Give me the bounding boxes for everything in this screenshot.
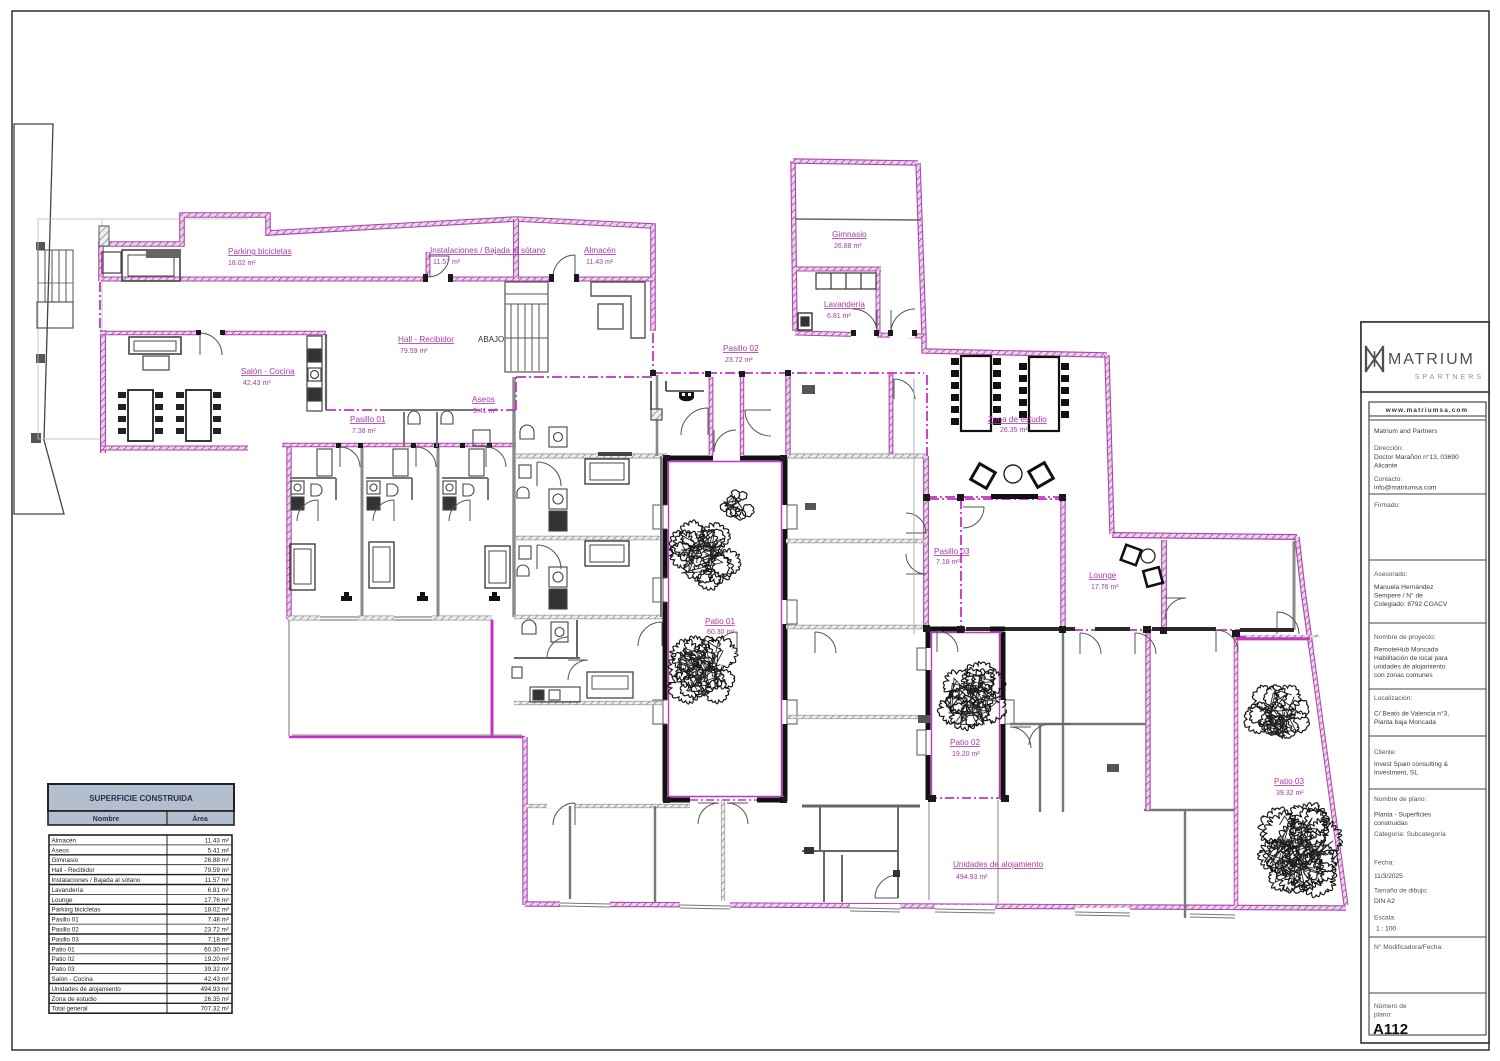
svg-text:18.02 m²: 18.02 m² [228, 260, 256, 267]
svg-text:17.76 m²: 17.76 m² [1091, 584, 1119, 591]
svg-text:DIN A2: DIN A2 [1374, 898, 1395, 905]
svg-text:42.43 m²: 42.43 m² [204, 976, 229, 983]
svg-text:Patio 01: Patio 01 [705, 617, 735, 626]
svg-text:Localización:: Localización: [1374, 695, 1412, 702]
svg-text:Lavandería: Lavandería [52, 887, 84, 894]
svg-text:RemoteHub Moncada: RemoteHub Moncada [1374, 647, 1438, 654]
svg-text:707.32 m²: 707.32 m² [201, 1006, 229, 1013]
svg-text:494.93 m²: 494.93 m² [201, 986, 229, 993]
svg-text:Hall - Recibidor: Hall - Recibidor [398, 335, 454, 344]
svg-text:Manuela Hernández: Manuela Hernández [1374, 584, 1433, 591]
svg-text:Firmado:: Firmado: [1374, 502, 1400, 509]
svg-text:23.72 m²: 23.72 m² [204, 927, 229, 934]
svg-text:Salón - Cocina: Salón - Cocina [52, 976, 94, 983]
svg-text:N° Modificadora/Fecha:: N° Modificadora/Fecha: [1374, 943, 1443, 951]
svg-text:17.76 m²: 17.76 m² [204, 897, 229, 904]
svg-text:Aseos: Aseos [472, 395, 495, 404]
svg-text:Pasillo 03: Pasillo 03 [934, 547, 970, 556]
svg-text:42.43 m²: 42.43 m² [243, 380, 271, 387]
svg-text:Pasillo 02: Pasillo 02 [52, 927, 80, 934]
svg-text:Zona de estudio: Zona de estudio [52, 996, 98, 1003]
svg-text:60.30 m²: 60.30 m² [204, 946, 229, 953]
svg-text:plano:: plano: [1374, 1012, 1392, 1019]
svg-text:26.88 m²: 26.88 m² [204, 857, 229, 864]
svg-text:Categoría: Subcategoría: Categoría: Subcategoría [1374, 831, 1446, 838]
svg-text:60.30 m²: 60.30 m² [707, 629, 735, 636]
svg-text:Zona de estudio: Zona de estudio [988, 415, 1047, 424]
svg-text:Patio 02: Patio 02 [950, 738, 980, 747]
svg-text:SPARTNERS: SPARTNERS [1415, 374, 1484, 381]
svg-text:6.81 m²: 6.81 m² [208, 887, 229, 894]
svg-text:26.35 m²: 26.35 m² [1000, 427, 1028, 434]
svg-text:Almacén: Almacén [52, 837, 77, 844]
svg-text:Número de: Número de [1374, 1003, 1407, 1010]
svg-text:MATRIUM: MATRIUM [1388, 351, 1475, 368]
svg-text:con zonas comunes: con zonas comunes [1374, 672, 1433, 679]
svg-text:7.48 m²: 7.48 m² [208, 917, 229, 924]
svg-text:Lavandería: Lavandería [824, 300, 865, 309]
svg-text:Escala:: Escala: [1374, 915, 1396, 922]
svg-text:info@matriumsa.com: info@matriumsa.com [1374, 485, 1437, 492]
svg-text:Almacén: Almacén [584, 246, 616, 255]
svg-text:19.20 m²: 19.20 m² [952, 751, 980, 758]
svg-text:6.81 m²: 6.81 m² [827, 313, 851, 320]
svg-text:Nombre de proyecto:: Nombre de proyecto: [1374, 634, 1436, 641]
svg-text:SUPERFICIE CONSTRUIDA: SUPERFICIE CONSTRUIDA [89, 794, 193, 803]
svg-text:Parking bicicletas: Parking bicicletas [228, 247, 292, 256]
svg-text:Pasillo 02: Pasillo 02 [723, 344, 759, 353]
svg-text:Dirección:: Dirección: [1374, 445, 1403, 452]
svg-text:Hall - Recibidor: Hall - Recibidor [52, 867, 95, 874]
svg-text:C/ Beato de Valencia n°3,: C/ Beato de Valencia n°3, [1374, 710, 1449, 718]
svg-text:Colegiado: 8792 CGACV: Colegiado: 8792 CGACV [1374, 601, 1448, 608]
svg-text:39.32 m²: 39.32 m² [1276, 790, 1304, 797]
svg-text:Pasillo 01: Pasillo 01 [52, 917, 80, 924]
svg-text:Nombre: Nombre [93, 816, 120, 823]
svg-text:Habilitación de local para: Habilitación de local para [1374, 655, 1448, 662]
svg-text:Lounge: Lounge [1089, 571, 1117, 580]
svg-text:Pasillo 01: Pasillo 01 [350, 415, 386, 424]
svg-text:23.72 m²: 23.72 m² [725, 357, 753, 364]
svg-text:Planta baja Moncada: Planta baja Moncada [1374, 719, 1436, 726]
svg-text:18.02 m²: 18.02 m² [204, 907, 229, 914]
svg-text:7.38 m²: 7.38 m² [352, 428, 376, 435]
svg-text:Lounge: Lounge [52, 897, 74, 904]
svg-text:7.18 m²: 7.18 m² [936, 559, 960, 566]
svg-text:Pasillo 03: Pasillo 03 [52, 936, 80, 943]
svg-text:39.32 m²: 39.32 m² [204, 966, 229, 973]
svg-text:7.18 m²: 7.18 m² [208, 936, 229, 943]
svg-text:Contacto:: Contacto: [1374, 476, 1402, 483]
svg-text:A112: A112 [1373, 1021, 1408, 1038]
svg-text:79.59 m²: 79.59 m² [204, 867, 229, 874]
svg-text:19.20 m²: 19.20 m² [204, 956, 229, 963]
svg-text:26.35 m²: 26.35 m² [204, 996, 229, 1003]
svg-text:ABAJO: ABAJO [478, 335, 504, 344]
svg-text:Patio 03: Patio 03 [1274, 777, 1304, 786]
svg-text:Patio 02: Patio 02 [52, 956, 76, 963]
svg-text:unidades de alojamiento: unidades de alojamiento [1374, 664, 1446, 671]
svg-text:Gimnasio: Gimnasio [832, 230, 867, 239]
svg-text:Instalaciones / Bajada al sóta: Instalaciones / Bajada al sótano [52, 877, 141, 884]
svg-text:79.59 m²: 79.59 m² [400, 348, 428, 355]
svg-text:Invest Spain consulting &: Invest Spain consulting & [1374, 761, 1449, 768]
svg-text:Matrium and Partners: Matrium and Partners [1374, 428, 1438, 435]
svg-text:Área: Área [192, 814, 208, 823]
svg-text:Nombre de plano:: Nombre de plano: [1374, 796, 1427, 803]
svg-text:Parking bicicletas: Parking bicicletas [52, 907, 101, 914]
svg-text:11.57 m²: 11.57 m² [205, 877, 229, 884]
svg-text:Patio 01: Patio 01 [52, 946, 76, 953]
svg-text:494.93 m²: 494.93 m² [956, 874, 988, 881]
svg-text:1 : 100: 1 : 100 [1376, 926, 1396, 933]
svg-text:www.matriumsa.com: www.matriumsa.com [1385, 407, 1468, 414]
svg-text:11.43 m²: 11.43 m² [205, 837, 229, 844]
svg-text:Cliente:: Cliente: [1374, 749, 1397, 756]
svg-text:Aseos: Aseos [52, 847, 70, 854]
svg-text:5.41 m²: 5.41 m² [208, 847, 229, 854]
svg-text:Salón - Cocina: Salón - Cocina [241, 367, 295, 376]
svg-text:Gimnasio: Gimnasio [52, 857, 79, 864]
svg-text:Patio 03: Patio 03 [52, 966, 76, 973]
svg-text:Planta - Superficies: Planta - Superficies [1374, 812, 1432, 819]
svg-text:Total general: Total general [52, 1006, 88, 1013]
svg-text:Instalaciones / Bajada al sóta: Instalaciones / Bajada al sótano [430, 246, 546, 255]
svg-text:Fecha:: Fecha: [1374, 860, 1394, 867]
svg-text:Asesorado:: Asesorado: [1374, 571, 1408, 578]
svg-text:11.43 m²: 11.43 m² [586, 259, 614, 266]
svg-text:5.41 m²: 5.41 m² [473, 408, 497, 415]
svg-text:Doctor Marañón n°13, 03690: Doctor Marañón n°13, 03690 [1374, 453, 1459, 461]
svg-text:Tamaño de dibujo:: Tamaño de dibujo: [1374, 888, 1428, 895]
svg-text:Unidades de alojamiento: Unidades de alojamiento [52, 986, 122, 993]
svg-text:11/3/2025: 11/3/2025 [1374, 873, 1403, 880]
svg-text:Investment, SL: Investment, SL [1374, 770, 1418, 777]
svg-text:26.88 m²: 26.88 m² [834, 243, 862, 250]
svg-text:11.57 m²: 11.57 m² [433, 259, 461, 266]
svg-text:Unidades de alojamiento: Unidades de alojamiento [953, 860, 1044, 869]
svg-text:Alicante: Alicante [1374, 463, 1398, 470]
svg-text:Sempere / N° de: Sempere / N° de [1374, 592, 1423, 600]
svg-text:construidas: construidas [1374, 820, 1408, 827]
